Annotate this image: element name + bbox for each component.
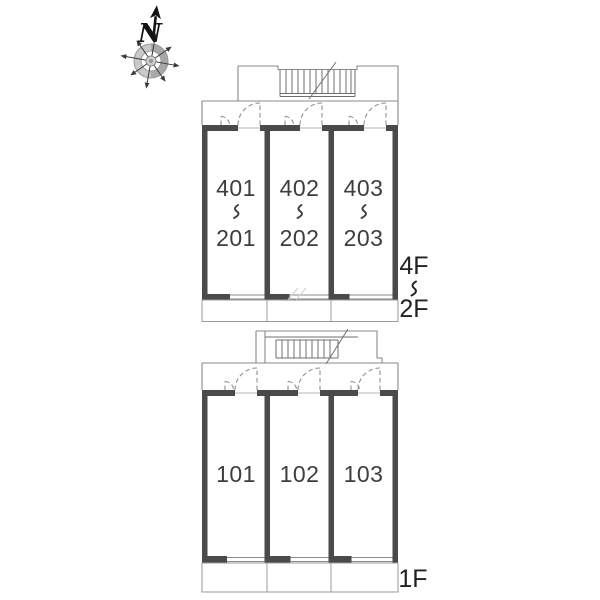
stairwell-outline-upper — [238, 66, 398, 125]
room-number: 103 — [344, 461, 384, 487]
door-swing-icon — [300, 103, 322, 125]
corridor-lower — [202, 363, 398, 390]
range-tilde — [362, 205, 366, 218]
staircase-lower — [265, 329, 358, 364]
door-swing-icon — [238, 103, 260, 125]
building-upper-floors: 401 201 402 202 403 203 4F 2F — [202, 62, 429, 323]
door-swing-icon — [225, 382, 234, 391]
walls-upper — [202, 125, 398, 300]
floor-range-label: 4F 2F — [399, 252, 428, 323]
door-swing-icon — [364, 103, 386, 125]
entry-doors-upper — [221, 103, 386, 125]
building-first-floor: 101 102 103 1F — [202, 329, 428, 593]
range-tilde — [234, 205, 238, 218]
site-floor-plan: N — [0, 0, 600, 600]
room-102: 102 — [280, 461, 320, 487]
room-402-202: 402 202 — [280, 175, 320, 251]
staircase-upper — [280, 62, 355, 99]
door-swing-icon — [235, 368, 257, 390]
door-swing-icon — [358, 368, 380, 390]
stair-break-line-lower — [326, 329, 348, 364]
floor-label: 1F — [398, 565, 427, 593]
room-401-201: 401 201 — [216, 175, 256, 251]
windows-upper — [230, 295, 393, 299]
door-swing-icon — [288, 382, 297, 391]
floor-range-top: 4F — [399, 252, 428, 280]
entry-doors-lower — [225, 368, 380, 390]
room-101: 101 — [216, 461, 256, 487]
floor-range-bottom: 2F — [399, 295, 428, 323]
room-number: 101 — [216, 461, 256, 487]
north-label: N — [137, 19, 163, 49]
room-103: 103 — [344, 461, 384, 487]
door-swing-icon — [349, 117, 358, 126]
room-number-top: 401 — [216, 175, 256, 201]
balcony-upper — [202, 300, 398, 322]
room-number-bottom: 201 — [216, 225, 256, 251]
windows-lower — [227, 558, 393, 562]
room-number-top: 403 — [344, 175, 384, 201]
room-number-bottom: 203 — [344, 225, 384, 251]
compass: N — [118, 5, 182, 92]
door-swing-icon — [298, 368, 320, 390]
door-swing-icon — [221, 117, 230, 126]
room-number-top: 402 — [280, 175, 320, 201]
room-403-203: 403 203 — [344, 175, 384, 251]
porch-lower — [202, 563, 398, 592]
room-number-bottom: 202 — [280, 225, 320, 251]
room-number: 102 — [280, 461, 320, 487]
door-swing-icon — [285, 117, 294, 126]
range-tilde — [412, 282, 417, 296]
range-tilde — [298, 205, 302, 218]
